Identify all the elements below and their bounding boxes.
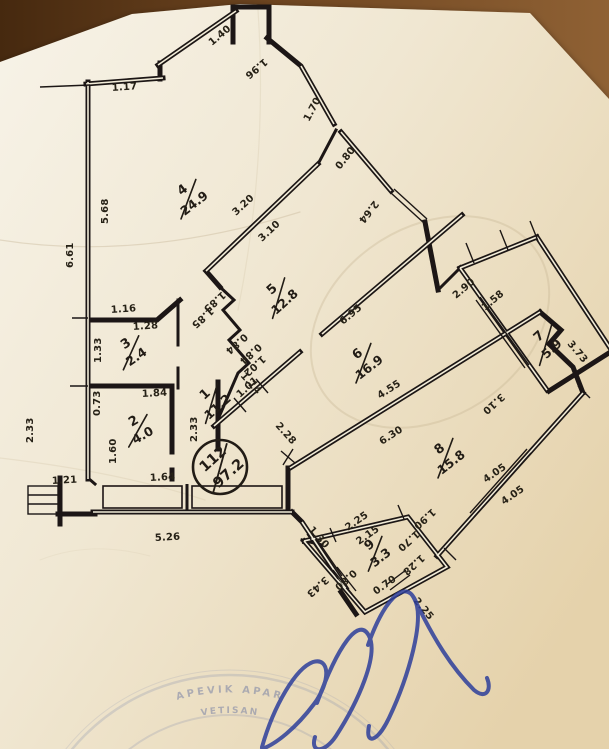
floor-plan-photo: 1.40 1.96 1.17 1.70 0.80 2.64 5.68 6.61 …: [0, 0, 609, 749]
dimension-label: 5.26: [155, 532, 181, 544]
dimension-label: 1.33: [93, 338, 104, 363]
dimension-label: 6.61: [65, 243, 76, 268]
dimension-label: 5.68: [100, 199, 111, 224]
dimension-label: 0.73: [92, 391, 103, 416]
dimension-label: 1.17: [111, 81, 137, 94]
dimension-label: 1.16: [110, 303, 136, 316]
dimension-label: 1.84: [142, 388, 168, 400]
dimension-label: 1.64: [150, 472, 176, 484]
dimension-label: 1.60: [108, 439, 119, 464]
dimension-label: 2.33: [25, 418, 36, 443]
dimension-label: 1.21: [52, 475, 78, 487]
photo-of-floor-plan: 1.40 1.96 1.17 1.70 0.80 2.64 5.68 6.61 …: [0, 0, 609, 749]
dimension-label: 2.33: [189, 417, 200, 442]
dimension-label: 1.28: [132, 320, 158, 333]
